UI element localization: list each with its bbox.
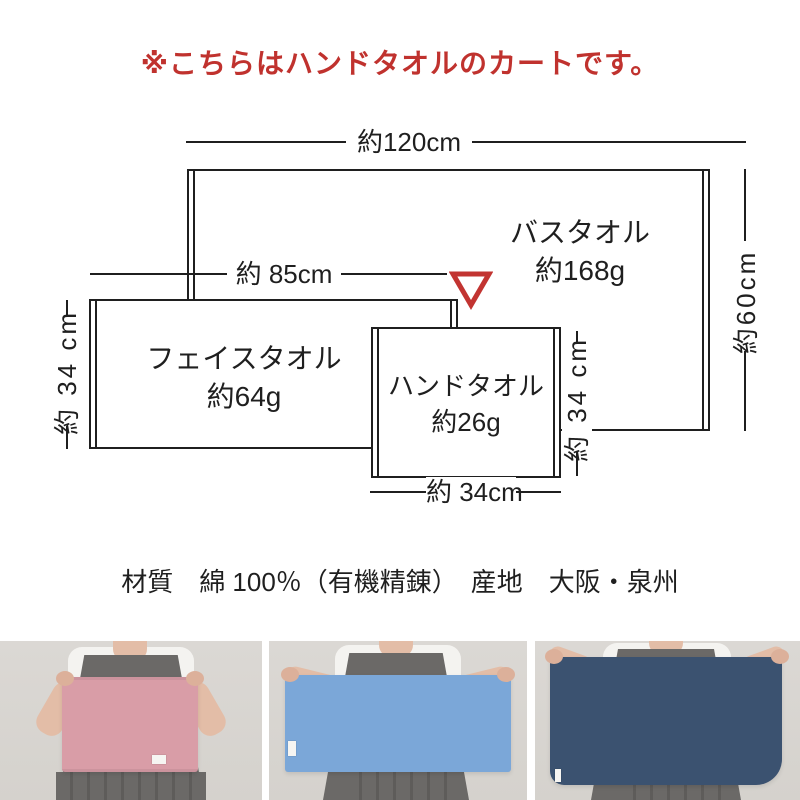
face-towel-photo-towel (285, 675, 511, 772)
photo-bath-towel (535, 641, 800, 800)
person-hand (56, 671, 74, 686)
face-towel-weight: 約64g (128, 378, 360, 416)
skirt-pleats (56, 772, 206, 800)
towel-tag (152, 755, 166, 764)
bath-towel-photo-towel (550, 657, 782, 785)
dimension-line (186, 141, 346, 143)
person-hand (281, 667, 299, 682)
person-hand (497, 667, 515, 682)
dimension-line (66, 426, 68, 449)
bath-towel-name: バスタオル (464, 214, 696, 252)
hand-towel-label: ハンドタオル 約26g (381, 368, 551, 440)
towel-tag (555, 769, 561, 782)
dimension-line (576, 452, 578, 476)
hand-width-label: 約 34cm (426, 477, 516, 507)
dimension-line (341, 273, 447, 275)
dimension-line (90, 273, 227, 275)
face-height-label: 約 34 cm (52, 315, 82, 435)
dimension-line (472, 141, 746, 143)
towel-tag (288, 741, 296, 756)
dimension-line (744, 169, 746, 251)
hem-line (95, 301, 97, 447)
dimension-line (370, 491, 426, 493)
hem-line (377, 329, 379, 476)
hand-towel-name: ハンドタオル (381, 368, 551, 404)
notice-text: ※こちらはハンドタオルのカートです。 (0, 42, 800, 82)
face-towel-name: フェイスタオル (128, 340, 360, 378)
hand-towel-photo-towel (62, 677, 198, 772)
product-image: ※こちらはハンドタオルのカートです。 約120cm 約60cm 約 85cm 約… (0, 0, 800, 800)
person-hand (771, 649, 789, 664)
bath-width-label: 約120cm (346, 127, 472, 157)
hand-towel-weight: 約26g (381, 404, 551, 440)
photo-hand-towel (0, 641, 262, 800)
person-hand (186, 671, 204, 686)
photo-face-towel (269, 641, 527, 800)
skirt-pleats (619, 785, 723, 800)
hand-height-label: 約 34 cm (562, 342, 592, 462)
bath-towel-label: バスタオル 約168g (464, 214, 696, 290)
face-width-label: 約 85cm (227, 259, 341, 289)
face-towel-label: フェイスタオル 約64g (128, 340, 360, 416)
skirt-pleats (345, 772, 457, 800)
person-hand (545, 649, 563, 664)
hem-line (702, 171, 704, 429)
bath-height-label: 約60cm (731, 241, 761, 363)
bath-towel-weight: 約168g (464, 252, 696, 290)
hand-towel-pointer-icon (449, 270, 493, 310)
dimension-line (744, 351, 746, 431)
dimension-line (516, 491, 561, 493)
specs-text: 材質 綿 100％（有機精錬） 産地 大阪・泉州 (0, 562, 800, 599)
hem-line (553, 329, 555, 476)
